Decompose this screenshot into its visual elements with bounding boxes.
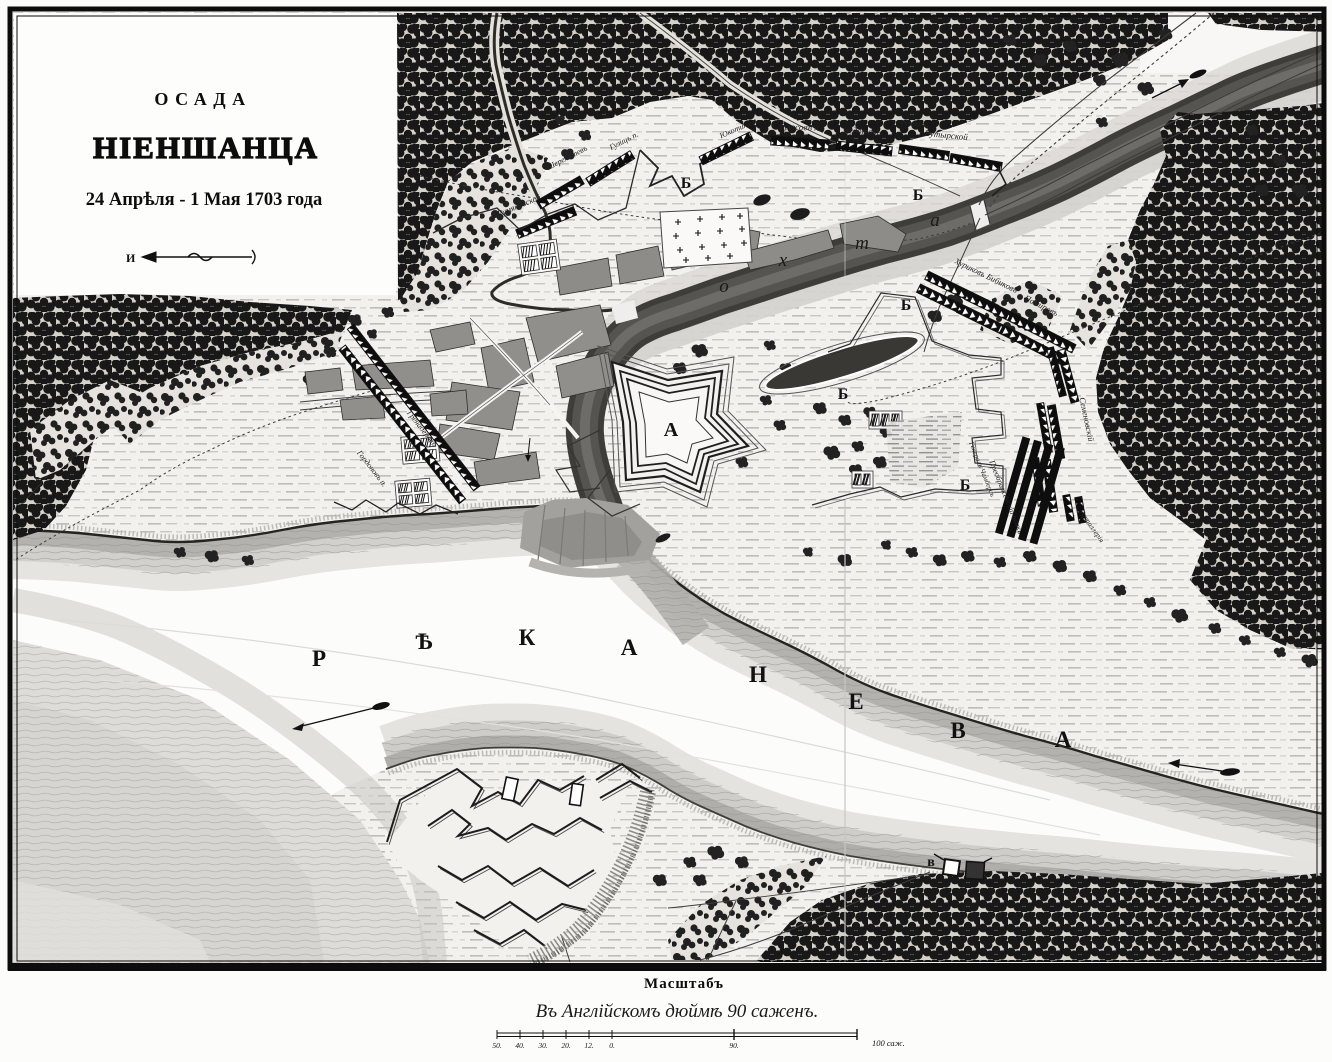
svg-text:90.: 90. (729, 1041, 739, 1050)
svg-text:Р: Р (312, 646, 326, 671)
svg-text:а: а (930, 210, 940, 231)
svg-text:х: х (778, 250, 788, 271)
svg-text:А: А (621, 635, 638, 660)
svg-text:И: И (126, 251, 136, 265)
svg-text:Б: Б (913, 187, 924, 204)
svg-text:Б: Б (901, 297, 912, 314)
svg-text:50.: 50. (492, 1041, 502, 1050)
svg-text:НІЕНШАНЦА: НІЕНШАНЦА (93, 130, 319, 165)
svg-text:Масштабъ: Масштабъ (644, 976, 724, 992)
svg-text:о: о (719, 276, 729, 297)
svg-text:12.: 12. (584, 1041, 594, 1050)
svg-text:в: в (927, 855, 935, 870)
svg-text:100 саж.: 100 саж. (872, 1038, 905, 1048)
svg-text:А: А (664, 419, 679, 441)
svg-text:К: К (519, 625, 536, 650)
svg-text:т: т (855, 233, 869, 254)
svg-text:Б: Б (838, 386, 849, 403)
svg-text:40.: 40. (515, 1041, 525, 1050)
svg-text:30.: 30. (537, 1041, 548, 1050)
svg-text:В: В (950, 718, 965, 743)
svg-text:Е: Е (848, 689, 863, 714)
svg-text:ОСАДА: ОСАДА (154, 89, 251, 109)
svg-text:24 Апрѣля - 1 Мая 1703 года: 24 Апрѣля - 1 Мая 1703 года (86, 190, 322, 210)
svg-text:А: А (1055, 727, 1072, 752)
svg-text:Въ Англійскомъ дюймѣ 90 саженъ: Въ Англійскомъ дюймѣ 90 саженъ. (536, 1001, 819, 1022)
svg-text:Н: Н (749, 662, 767, 687)
svg-text:Б: Б (960, 477, 971, 494)
svg-text:Дедотовъ: Дедотовъ (842, 125, 882, 137)
svg-text:Ѣ: Ѣ (415, 629, 433, 654)
svg-text:Брюсовъ п.: Брюсовъ п. (778, 121, 821, 132)
svg-text:20.: 20. (561, 1041, 571, 1050)
svg-text:Б: Б (681, 175, 692, 192)
svg-text:0.: 0. (609, 1041, 615, 1050)
